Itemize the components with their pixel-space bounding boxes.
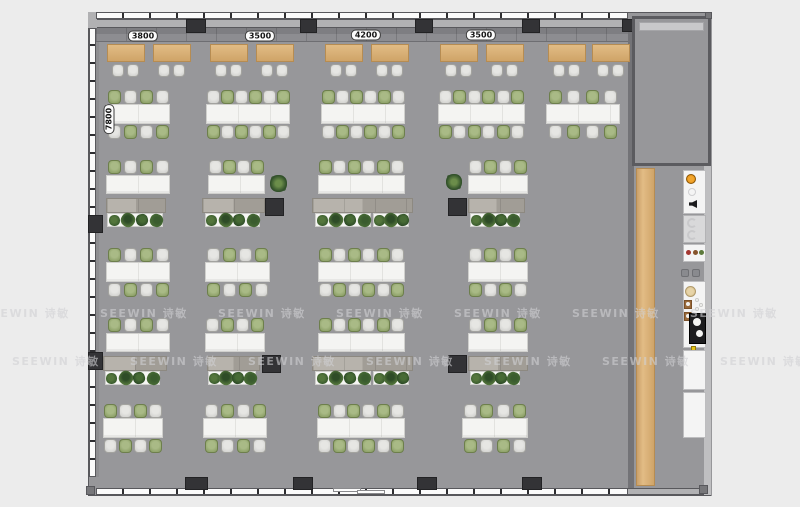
office-chair (514, 160, 527, 174)
office-chair (464, 439, 477, 453)
supply-item (693, 250, 698, 255)
office-chair (124, 160, 137, 174)
office-chair (586, 125, 599, 139)
structural-column (293, 477, 313, 490)
office-chair (223, 248, 236, 262)
plant (109, 215, 120, 226)
cafe-chair (568, 64, 580, 77)
office-chair (223, 283, 236, 297)
meeting-room (632, 16, 711, 166)
office-chair (108, 90, 121, 104)
office-chair (104, 439, 117, 453)
office-chair (439, 90, 452, 104)
office-chair (377, 404, 390, 418)
structural-column (448, 198, 467, 216)
sink-basin (687, 218, 697, 228)
office-chair (377, 248, 390, 262)
office-chair (253, 404, 266, 418)
office-chair (480, 439, 493, 453)
desk-table (462, 418, 528, 438)
office-chair (567, 90, 580, 104)
cafe-chair (173, 64, 185, 77)
office-chair (140, 160, 153, 174)
office-chair (497, 90, 510, 104)
office-chair (205, 404, 218, 418)
desk-table (106, 175, 170, 194)
structural-column (415, 19, 433, 33)
office-chair (453, 90, 466, 104)
office-chair (322, 125, 335, 139)
office-chair (348, 248, 361, 262)
office-chair (124, 318, 137, 332)
stove-burner (696, 330, 703, 337)
desk-table (106, 104, 170, 124)
cafe-table (440, 44, 478, 62)
cafe-table (256, 44, 294, 62)
cafe-chair (553, 64, 565, 77)
cafe-chair (330, 64, 342, 77)
office-chair (124, 248, 137, 262)
wall-left-inner (96, 28, 99, 477)
office-chair (604, 90, 617, 104)
floor-plant (270, 175, 287, 192)
office-chair (255, 283, 268, 297)
whiteboard (639, 22, 704, 31)
kitchen-counter (683, 392, 706, 438)
office-chair (205, 439, 218, 453)
office-chair (249, 90, 262, 104)
office-chair (156, 90, 169, 104)
plant (317, 215, 328, 226)
office-chair (237, 439, 250, 453)
plant (206, 215, 217, 226)
office-chair (362, 160, 375, 174)
office-chair (333, 404, 346, 418)
watermark-text: SEEWIN 诗敏 (454, 305, 564, 319)
office-chair (362, 439, 375, 453)
office-chair (223, 160, 236, 174)
desk-table (468, 262, 528, 282)
structural-column (88, 215, 103, 233)
office-chair (156, 283, 169, 297)
office-chair (235, 90, 248, 104)
office-chair (511, 90, 524, 104)
cafe-chair (276, 64, 288, 77)
cafe-chair (158, 64, 170, 77)
office-chair (251, 318, 264, 332)
supply-item (699, 250, 704, 255)
watermark-text: SEEWIN 诗敏 (218, 305, 328, 319)
office-chair (140, 90, 153, 104)
office-chair (362, 404, 375, 418)
office-chair (468, 125, 481, 139)
office-chair (140, 283, 153, 297)
office-chair (392, 90, 405, 104)
office-chair (567, 125, 580, 139)
office-chair (484, 248, 497, 262)
cafe-table (325, 44, 363, 62)
office-chair (514, 318, 527, 332)
cafe-chair (506, 64, 518, 77)
dimension-label: 4200 (351, 30, 381, 41)
plant (471, 215, 482, 226)
office-chair (482, 125, 495, 139)
office-chair (348, 318, 361, 332)
office-chair (468, 90, 481, 104)
watermark-text: SEEWIN 诗敏 (690, 305, 800, 319)
office-chair (364, 90, 377, 104)
office-chair (464, 404, 477, 418)
office-chair (140, 125, 153, 139)
office-chair (469, 283, 482, 297)
storage-cabinet (202, 198, 265, 213)
cafe-chair (345, 64, 357, 77)
plant (106, 373, 117, 384)
office-chair (236, 318, 249, 332)
floor-plan-image: SEEWIN 诗敏SEEWIN 诗敏SEEWIN 诗敏SEEWIN 诗敏SEEW… (0, 0, 800, 507)
cafe-chair (491, 64, 503, 77)
office-chair (149, 404, 162, 418)
wall-top (88, 19, 634, 28)
watermark-text: SEEWIN 诗敏 (602, 353, 712, 367)
office-chair (391, 439, 404, 453)
office-chair (156, 160, 169, 174)
desk-table (106, 333, 170, 352)
office-chair (124, 125, 137, 139)
office-chair (206, 318, 219, 332)
office-chair (482, 90, 495, 104)
office-chair (108, 160, 121, 174)
dimension-label: 7800 (104, 104, 115, 134)
office-chair (124, 283, 137, 297)
office-chair (377, 318, 390, 332)
office-chair (469, 318, 482, 332)
office-chair (255, 248, 268, 262)
office-chair (378, 125, 391, 139)
office-chair (499, 248, 512, 262)
watermark-text: SEEWIN 诗敏 (720, 353, 800, 367)
window-wall-top (96, 12, 628, 19)
desk-table (317, 418, 405, 438)
structural-column (417, 477, 437, 490)
cafe-chair (261, 64, 273, 77)
office-chair (134, 404, 147, 418)
wall-corner-block (705, 12, 712, 19)
office-chair (391, 160, 404, 174)
office-chair (263, 125, 276, 139)
office-chair (377, 160, 390, 174)
office-chair (377, 283, 390, 297)
office-chair (319, 248, 332, 262)
office-chair (513, 439, 526, 453)
office-chair (221, 318, 234, 332)
dimension-label: 3500 (466, 30, 496, 41)
desk-table (318, 262, 405, 282)
office-chair (319, 318, 332, 332)
office-chair (362, 283, 375, 297)
cafe-chair (597, 64, 609, 77)
desk-table (206, 104, 290, 124)
office-chair (209, 160, 222, 174)
cafe-chair (215, 64, 227, 77)
office-chair (322, 90, 335, 104)
office-chair (469, 248, 482, 262)
dimension-label: 3500 (245, 31, 275, 42)
storage-cabinet (468, 198, 525, 213)
office-chair (350, 125, 363, 139)
storage-cabinet (106, 198, 166, 213)
office-chair (221, 439, 234, 453)
cup-icon (681, 269, 689, 277)
office-chair (378, 90, 391, 104)
cafe-table (371, 44, 409, 62)
office-chair (391, 283, 404, 297)
office-chair (469, 160, 482, 174)
cafe-table (592, 44, 630, 62)
office-chair (207, 90, 220, 104)
office-chair (364, 125, 377, 139)
watermark-text: SEEWIN 诗敏 (484, 353, 594, 367)
office-chair (263, 90, 276, 104)
office-chair (336, 90, 349, 104)
watermark-text: SEEWIN 诗敏 (336, 305, 446, 319)
cafe-chair (376, 64, 388, 77)
cafe-chair (391, 64, 403, 77)
office-chair (318, 439, 331, 453)
cafe-table (153, 44, 191, 62)
sink-basin (687, 230, 697, 240)
office-chair (239, 283, 252, 297)
wood-bar-counter (636, 168, 655, 486)
wall-bottom-right (628, 488, 705, 495)
cafe-table (107, 44, 145, 62)
office-chair (497, 439, 510, 453)
office-chair (207, 125, 220, 139)
office-chair (134, 439, 147, 453)
office-chair (347, 404, 360, 418)
office-chair (333, 318, 346, 332)
office-chair (124, 90, 137, 104)
desk-table (318, 175, 405, 194)
office-chair (119, 439, 132, 453)
office-chair (251, 160, 264, 174)
office-chair (108, 318, 121, 332)
office-chair (499, 318, 512, 332)
office-chair (239, 248, 252, 262)
cafe-table (548, 44, 586, 62)
plant (471, 373, 482, 384)
office-chair (249, 125, 262, 139)
watermark-text: SEEWIN 诗敏 (12, 353, 122, 367)
cafe-table (210, 44, 248, 62)
office-chair (336, 125, 349, 139)
structural-column (186, 19, 206, 33)
storage-cabinet (312, 198, 413, 213)
entrance-door-leaf (357, 490, 385, 494)
plate (685, 286, 696, 297)
cafe-chair (460, 64, 472, 77)
office-chair (391, 248, 404, 262)
cafe-chair (445, 64, 457, 77)
office-chair (156, 318, 169, 332)
office-chair (221, 404, 234, 418)
office-chair (391, 318, 404, 332)
office-chair (484, 160, 497, 174)
desk-table (103, 418, 163, 438)
desk-table (318, 333, 405, 352)
desk-table (438, 104, 525, 124)
office-chair (108, 283, 121, 297)
watermark-text: SEEWIN 诗敏 (572, 305, 682, 319)
office-chair (237, 160, 250, 174)
office-chair (513, 404, 526, 418)
office-chair (499, 283, 512, 297)
wall-corner-block (86, 486, 95, 495)
office-chair (333, 248, 346, 262)
office-chair (391, 404, 404, 418)
structural-column (185, 477, 208, 490)
burner-knob (686, 174, 696, 184)
watermark-text: SEEWIN 诗敏 (366, 353, 476, 367)
office-chair (362, 318, 375, 332)
desk-table (208, 175, 265, 194)
office-chair (392, 125, 405, 139)
office-chair (484, 283, 497, 297)
office-chair (497, 404, 510, 418)
office-chair (514, 248, 527, 262)
desk-table (468, 175, 528, 194)
office-chair (604, 125, 617, 139)
cafe-table (486, 44, 524, 62)
office-chair (497, 125, 510, 139)
office-chair (348, 160, 361, 174)
desk-table (106, 262, 170, 282)
cafe-chair (127, 64, 139, 77)
desk-table (546, 104, 620, 124)
office-chair (453, 125, 466, 139)
office-chair (549, 125, 562, 139)
office-chair (348, 283, 361, 297)
office-chair (235, 125, 248, 139)
office-chair (237, 404, 250, 418)
office-chair (119, 404, 132, 418)
office-chair (480, 404, 493, 418)
structural-column (265, 198, 284, 216)
office-chair (362, 248, 375, 262)
office-chair (319, 160, 332, 174)
watermark-text: SEEWIN 诗敏 (100, 305, 210, 319)
office-chair (586, 90, 599, 104)
wall-corner-block (699, 485, 708, 494)
office-chair (207, 283, 220, 297)
office-chair (333, 283, 346, 297)
office-chair (319, 283, 332, 297)
office-chair (511, 125, 524, 139)
office-chair (318, 404, 331, 418)
office-chair (484, 318, 497, 332)
watermark-text: SEEWIN 诗敏 (248, 353, 358, 367)
desk-table (205, 262, 270, 282)
desk-table (468, 333, 528, 352)
office-chair (149, 439, 162, 453)
office-chair (108, 248, 121, 262)
office-chair (277, 90, 290, 104)
office-chair (140, 248, 153, 262)
floor-plant (446, 174, 462, 190)
supply-item (686, 250, 691, 255)
watermark-text: SEEWIN 诗敏 (0, 305, 92, 319)
structural-column (522, 477, 542, 490)
office-chair (514, 283, 527, 297)
office-chair (221, 90, 234, 104)
structural-column (522, 19, 540, 33)
office-chair (377, 439, 390, 453)
desk-table (205, 333, 265, 352)
office-chair (156, 125, 169, 139)
cup-icon (692, 269, 700, 277)
office-chair (104, 404, 117, 418)
plant (317, 373, 328, 384)
cafe-chair (612, 64, 624, 77)
office-chair (499, 160, 512, 174)
office-chair (333, 160, 346, 174)
office-chair (140, 318, 153, 332)
structural-column (300, 19, 317, 33)
office-chair (347, 439, 360, 453)
office-chair (549, 90, 562, 104)
cafe-chair (230, 64, 242, 77)
desk-table (321, 104, 405, 124)
office-chair (350, 90, 363, 104)
office-chair (439, 125, 452, 139)
small-dot (695, 298, 699, 302)
office-chair (156, 248, 169, 262)
desk-table (203, 418, 267, 438)
office-chair (253, 439, 266, 453)
office-chair (277, 125, 290, 139)
dial (688, 188, 696, 196)
office-chair (333, 439, 346, 453)
dimension-label: 3800 (128, 31, 158, 42)
office-chair (221, 125, 234, 139)
cafe-chair (112, 64, 124, 77)
watermark-text: SEEWIN 诗敏 (130, 353, 240, 367)
window-wall-left (89, 28, 96, 477)
office-chair (207, 248, 220, 262)
